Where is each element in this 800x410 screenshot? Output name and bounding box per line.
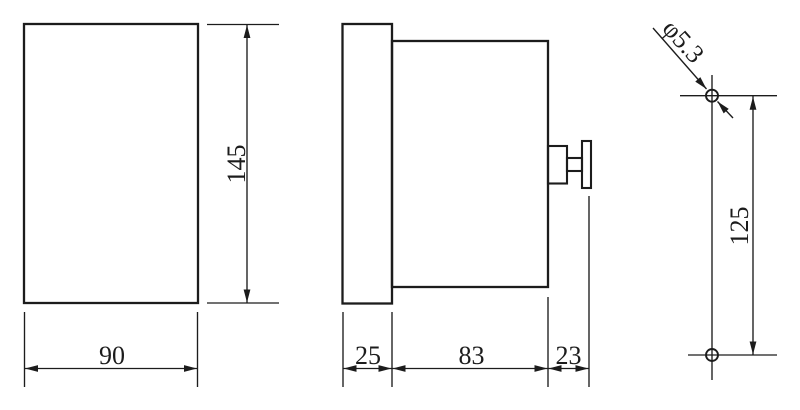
knob-cap bbox=[582, 141, 591, 188]
bezel-depth-label: 25 bbox=[355, 341, 381, 370]
drawing-marks: 90 145 25 83 23 125 φ5.3 bbox=[25, 14, 756, 372]
arrowhead-spacing-top bbox=[750, 97, 757, 110]
front-height-label: 145 bbox=[222, 145, 251, 184]
front-width-label: 90 bbox=[99, 341, 125, 370]
arrowhead-width-right bbox=[184, 365, 197, 372]
knob-shaft bbox=[567, 158, 582, 171]
side-view-bezel bbox=[343, 24, 393, 304]
side-view-body bbox=[392, 41, 548, 287]
mounting-view bbox=[653, 28, 777, 380]
arrowhead-spacing-bottom bbox=[750, 342, 757, 355]
arrowhead-body-left bbox=[393, 365, 406, 372]
knob-boss bbox=[548, 146, 567, 184]
hole-diameter-label: φ5.3 bbox=[657, 14, 710, 69]
front-view-outline bbox=[24, 24, 198, 303]
side-view bbox=[343, 24, 592, 387]
knob-depth-label: 23 bbox=[556, 341, 582, 370]
arrowhead-width-left bbox=[25, 365, 38, 372]
dimension-drawing: 90 145 25 83 23 125 φ5.3 bbox=[0, 0, 800, 410]
front-view bbox=[24, 24, 279, 387]
hole-spacing-label: 125 bbox=[725, 207, 754, 246]
drawing-lines bbox=[24, 24, 777, 387]
arrowhead-height-bottom bbox=[244, 290, 251, 303]
arrowhead-height-top bbox=[244, 25, 251, 38]
body-depth-label: 83 bbox=[459, 341, 485, 370]
arrowhead-body-right bbox=[535, 365, 548, 372]
